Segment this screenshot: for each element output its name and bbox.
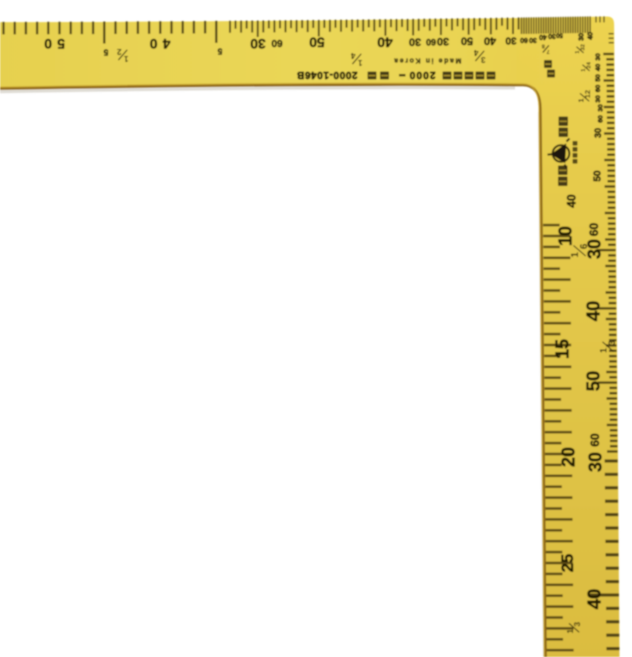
- svg-text:12: 12: [583, 90, 592, 98]
- svg-text:3: 3: [480, 55, 485, 64]
- svg-text:30: 30: [586, 452, 606, 472]
- svg-text:24: 24: [586, 61, 592, 68]
- svg-text:1: 1: [566, 628, 575, 633]
- svg-text:1: 1: [570, 252, 581, 258]
- svg-text:60: 60: [271, 37, 283, 48]
- svg-text:30: 30: [548, 32, 556, 39]
- svg-text:60: 60: [426, 37, 436, 47]
- svg-text:40: 40: [564, 194, 578, 208]
- svg-text:30: 30: [595, 95, 602, 103]
- svg-text:50: 50: [595, 74, 602, 82]
- svg-text:40: 40: [377, 35, 393, 51]
- svg-text:30: 30: [505, 34, 517, 45]
- svg-text:60: 60: [595, 85, 602, 93]
- svg-text:40: 40: [584, 589, 605, 610]
- svg-text:40: 40: [539, 33, 547, 40]
- svg-text:15: 15: [553, 339, 573, 359]
- svg-text:1: 1: [599, 348, 609, 353]
- svg-text:40: 40: [588, 32, 595, 40]
- svg-text:30: 30: [529, 36, 537, 43]
- svg-text:10: 10: [556, 226, 576, 246]
- svg-text:6: 6: [579, 243, 590, 249]
- svg-text:60: 60: [587, 223, 601, 237]
- svg-text:30: 30: [437, 35, 449, 47]
- svg-text:Made in Korea: Made in Korea: [393, 57, 462, 64]
- svg-text:50: 50: [309, 35, 325, 51]
- svg-text:32: 32: [580, 44, 586, 50]
- svg-text:7: 7: [547, 48, 550, 54]
- svg-text:50: 50: [39, 36, 65, 52]
- svg-text:2000-1046B: 2000-1046B: [296, 69, 357, 80]
- svg-text:40: 40: [583, 301, 604, 322]
- svg-text:1: 1: [357, 58, 362, 67]
- svg-text:40: 40: [595, 64, 602, 72]
- svg-text:50: 50: [556, 31, 563, 37]
- svg-text:20: 20: [559, 447, 579, 467]
- svg-text:30: 30: [409, 36, 421, 48]
- svg-text:4: 4: [473, 48, 478, 57]
- svg-text:3: 3: [607, 340, 617, 345]
- svg-text:2: 2: [116, 47, 121, 56]
- svg-text:30: 30: [593, 128, 603, 138]
- svg-text:50: 50: [593, 170, 604, 182]
- svg-text:4: 4: [350, 51, 355, 60]
- svg-text:50: 50: [461, 35, 473, 47]
- svg-text:60: 60: [597, 115, 604, 123]
- svg-text:2000: 2000: [408, 69, 435, 80]
- svg-text:50: 50: [583, 371, 604, 392]
- svg-text:40: 40: [484, 35, 496, 47]
- svg-text:30: 30: [579, 33, 586, 41]
- svg-text:40: 40: [145, 36, 171, 52]
- svg-text:60: 60: [588, 433, 602, 447]
- svg-text:25: 25: [559, 554, 577, 572]
- svg-text:30: 30: [250, 36, 266, 52]
- svg-text:3: 3: [573, 621, 582, 626]
- svg-text:8: 8: [542, 43, 545, 49]
- svg-text:30: 30: [595, 53, 602, 61]
- svg-text:1: 1: [123, 54, 128, 63]
- svg-text:30: 30: [597, 104, 604, 112]
- svg-text:5: 5: [103, 47, 108, 57]
- svg-text:5: 5: [217, 46, 222, 56]
- svg-text:60: 60: [520, 36, 528, 43]
